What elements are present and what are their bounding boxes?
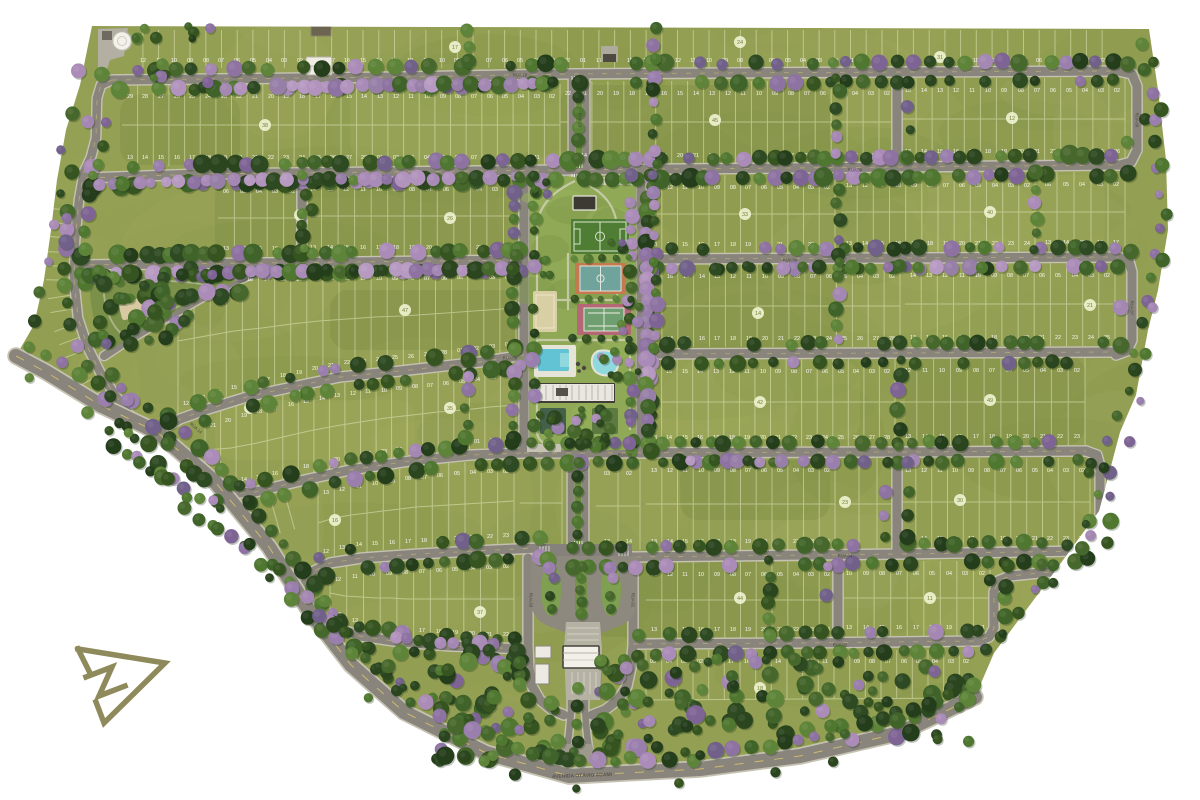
svg-text:15: 15 xyxy=(682,242,688,248)
svg-text:27: 27 xyxy=(869,435,875,441)
svg-text:03: 03 xyxy=(281,58,287,64)
svg-text:19: 19 xyxy=(946,625,952,631)
svg-text:17: 17 xyxy=(452,45,458,51)
svg-text:14: 14 xyxy=(755,311,761,317)
svg-text:19: 19 xyxy=(296,370,302,376)
svg-text:18: 18 xyxy=(629,91,635,97)
svg-text:07: 07 xyxy=(745,468,751,474)
svg-text:03: 03 xyxy=(948,659,954,665)
svg-text:08: 08 xyxy=(791,369,797,375)
svg-text:06: 06 xyxy=(436,568,442,574)
svg-text:20: 20 xyxy=(312,366,318,372)
svg-text:02: 02 xyxy=(884,91,890,97)
svg-text:06: 06 xyxy=(487,94,493,100)
svg-text:12: 12 xyxy=(393,94,399,100)
svg-text:15: 15 xyxy=(677,91,683,97)
svg-text:14: 14 xyxy=(921,88,927,94)
svg-text:06: 06 xyxy=(901,659,907,665)
svg-text:03: 03 xyxy=(1063,468,1069,474)
svg-text:01: 01 xyxy=(474,439,480,445)
svg-text:14: 14 xyxy=(361,94,367,100)
svg-text:16: 16 xyxy=(288,402,294,408)
svg-text:08: 08 xyxy=(412,384,418,390)
svg-text:14: 14 xyxy=(775,659,781,665)
svg-text:23: 23 xyxy=(1074,434,1080,440)
svg-text:02: 02 xyxy=(884,369,890,375)
svg-text:04: 04 xyxy=(1040,368,1046,374)
svg-text:04: 04 xyxy=(470,470,476,476)
svg-text:13: 13 xyxy=(846,625,852,631)
svg-text:16: 16 xyxy=(661,91,667,97)
svg-text:02: 02 xyxy=(549,94,555,100)
svg-text:01: 01 xyxy=(580,58,586,64)
svg-text:17: 17 xyxy=(714,336,720,342)
svg-text:02: 02 xyxy=(979,571,985,577)
svg-text:11: 11 xyxy=(922,368,928,374)
svg-text:23: 23 xyxy=(1008,241,1014,247)
svg-text:03: 03 xyxy=(487,469,493,475)
svg-text:42: 42 xyxy=(757,400,763,406)
svg-text:14: 14 xyxy=(142,155,148,161)
svg-text:13: 13 xyxy=(926,273,932,279)
svg-text:17: 17 xyxy=(714,627,720,633)
svg-text:21: 21 xyxy=(1087,303,1093,309)
svg-text:14: 14 xyxy=(356,542,362,548)
svg-text:04: 04 xyxy=(852,91,858,97)
svg-text:11: 11 xyxy=(682,572,688,578)
svg-text:10: 10 xyxy=(939,368,945,374)
svg-text:22: 22 xyxy=(268,155,274,161)
svg-text:03: 03 xyxy=(604,471,610,477)
svg-text:15: 15 xyxy=(372,541,378,547)
svg-text:07: 07 xyxy=(419,569,425,575)
svg-text:45: 45 xyxy=(712,118,718,124)
svg-text:05: 05 xyxy=(777,572,783,578)
svg-text:11: 11 xyxy=(352,574,358,580)
svg-text:19: 19 xyxy=(745,539,751,545)
svg-text:03: 03 xyxy=(534,94,540,100)
svg-text:04: 04 xyxy=(518,94,524,100)
svg-text:07: 07 xyxy=(745,572,751,578)
svg-text:03: 03 xyxy=(868,91,874,97)
svg-text:02: 02 xyxy=(1074,368,1080,374)
svg-text:21: 21 xyxy=(778,336,784,342)
svg-text:03: 03 xyxy=(492,187,498,193)
svg-text:12: 12 xyxy=(1009,116,1015,122)
svg-text:40: 40 xyxy=(987,210,993,216)
svg-text:04: 04 xyxy=(800,58,806,64)
svg-text:35: 35 xyxy=(447,406,453,412)
svg-text:02: 02 xyxy=(1114,88,1120,94)
svg-text:08: 08 xyxy=(869,659,875,665)
svg-text:24: 24 xyxy=(737,40,743,46)
svg-text:07: 07 xyxy=(218,58,224,64)
svg-text:11: 11 xyxy=(969,88,975,94)
svg-text:10: 10 xyxy=(952,468,958,474)
svg-text:26: 26 xyxy=(857,336,863,342)
svg-text:16: 16 xyxy=(896,625,902,631)
svg-text:08: 08 xyxy=(788,91,794,97)
svg-text:15: 15 xyxy=(682,369,688,375)
svg-text:16: 16 xyxy=(332,518,338,524)
svg-text:13: 13 xyxy=(127,155,133,161)
svg-text:14: 14 xyxy=(699,274,705,280)
svg-text:24: 24 xyxy=(1088,335,1094,341)
svg-text:06: 06 xyxy=(1050,88,1056,94)
svg-text:17: 17 xyxy=(913,625,919,631)
svg-text:23: 23 xyxy=(1072,335,1078,341)
svg-text:11: 11 xyxy=(408,94,414,100)
svg-text:08: 08 xyxy=(203,58,209,64)
svg-text:13: 13 xyxy=(651,627,657,633)
svg-text:09: 09 xyxy=(854,659,860,665)
svg-text:11: 11 xyxy=(959,273,965,279)
svg-text:04: 04 xyxy=(1047,468,1053,474)
svg-text:17: 17 xyxy=(405,539,411,545)
svg-text:49: 49 xyxy=(987,398,993,404)
svg-text:09: 09 xyxy=(775,369,781,375)
svg-text:08: 08 xyxy=(405,476,411,482)
svg-text:14: 14 xyxy=(910,273,916,279)
svg-text:05: 05 xyxy=(452,567,458,573)
svg-text:17: 17 xyxy=(973,434,979,440)
svg-text:22: 22 xyxy=(565,91,571,97)
svg-text:19: 19 xyxy=(241,413,247,419)
svg-text:04: 04 xyxy=(946,571,952,577)
svg-text:24: 24 xyxy=(1024,241,1030,247)
svg-text:12: 12 xyxy=(667,468,673,474)
svg-text:17: 17 xyxy=(419,628,425,634)
svg-text:06: 06 xyxy=(761,185,767,191)
svg-text:08: 08 xyxy=(730,185,736,191)
svg-text:07: 07 xyxy=(943,183,949,189)
svg-text:11: 11 xyxy=(746,274,752,280)
svg-text:14: 14 xyxy=(693,91,699,97)
svg-text:09: 09 xyxy=(714,572,720,578)
svg-text:08: 08 xyxy=(984,468,990,474)
svg-text:04: 04 xyxy=(853,369,859,375)
svg-text:20: 20 xyxy=(268,94,274,100)
svg-text:30: 30 xyxy=(957,498,963,504)
svg-text:02: 02 xyxy=(824,572,830,578)
svg-text:10: 10 xyxy=(846,571,852,577)
svg-text:05: 05 xyxy=(785,58,791,64)
svg-text:04: 04 xyxy=(992,183,998,189)
svg-text:07: 07 xyxy=(486,58,492,64)
svg-text:37: 37 xyxy=(477,610,483,616)
svg-text:12: 12 xyxy=(350,391,356,397)
svg-text:23: 23 xyxy=(842,500,848,506)
svg-text:12: 12 xyxy=(953,88,959,94)
svg-text:09: 09 xyxy=(396,386,402,392)
svg-text:07: 07 xyxy=(471,94,477,100)
svg-text:06: 06 xyxy=(443,381,449,387)
svg-text:09: 09 xyxy=(1001,88,1007,94)
svg-text:12: 12 xyxy=(730,274,736,280)
svg-text:17: 17 xyxy=(714,242,720,248)
svg-text:23: 23 xyxy=(503,533,509,539)
svg-text:12: 12 xyxy=(675,58,681,64)
svg-text:16: 16 xyxy=(699,336,705,342)
svg-text:10: 10 xyxy=(756,91,762,97)
svg-text:16: 16 xyxy=(272,471,278,477)
svg-text:18: 18 xyxy=(280,373,286,379)
svg-text:03: 03 xyxy=(1057,368,1063,374)
svg-text:12: 12 xyxy=(183,401,189,407)
svg-text:02: 02 xyxy=(626,471,632,477)
svg-text:09: 09 xyxy=(440,94,446,100)
svg-text:26: 26 xyxy=(447,216,453,222)
svg-text:12: 12 xyxy=(921,468,927,474)
svg-text:18: 18 xyxy=(730,336,736,342)
svg-text:22: 22 xyxy=(1057,434,1063,440)
svg-text:07: 07 xyxy=(989,368,995,374)
svg-text:02: 02 xyxy=(1104,273,1110,279)
svg-text:13: 13 xyxy=(713,369,719,375)
svg-text:07: 07 xyxy=(1034,88,1040,94)
svg-text:03: 03 xyxy=(808,468,814,474)
svg-text:15: 15 xyxy=(158,155,164,161)
svg-text:10: 10 xyxy=(760,369,766,375)
svg-text:06: 06 xyxy=(820,91,826,97)
svg-text:10: 10 xyxy=(698,572,704,578)
svg-text:11: 11 xyxy=(927,596,933,602)
svg-text:13: 13 xyxy=(937,88,943,94)
svg-text:03: 03 xyxy=(869,369,875,375)
svg-text:20: 20 xyxy=(225,418,231,424)
svg-text:05: 05 xyxy=(517,58,523,64)
svg-text:06: 06 xyxy=(1039,273,1045,279)
svg-text:19: 19 xyxy=(745,627,751,633)
svg-text:04: 04 xyxy=(1082,88,1088,94)
svg-text:22: 22 xyxy=(487,534,493,540)
svg-text:13: 13 xyxy=(339,545,345,551)
svg-text:22: 22 xyxy=(344,360,350,366)
svg-text:02: 02 xyxy=(963,659,969,665)
svg-text:33: 33 xyxy=(742,212,748,218)
svg-text:19: 19 xyxy=(745,242,751,248)
svg-text:22: 22 xyxy=(1047,536,1053,542)
svg-text:47: 47 xyxy=(402,308,408,314)
svg-text:04: 04 xyxy=(1079,182,1085,188)
svg-text:31: 31 xyxy=(937,55,943,61)
svg-text:38: 38 xyxy=(262,123,268,129)
svg-text:28: 28 xyxy=(142,94,148,100)
svg-text:18: 18 xyxy=(421,538,427,544)
svg-text:19: 19 xyxy=(613,91,619,97)
svg-text:08: 08 xyxy=(737,58,743,64)
svg-text:08: 08 xyxy=(409,187,415,193)
svg-text:15: 15 xyxy=(231,385,237,391)
svg-text:13: 13 xyxy=(651,468,657,474)
svg-text:23: 23 xyxy=(806,435,812,441)
svg-text:07: 07 xyxy=(804,91,810,97)
svg-text:06: 06 xyxy=(223,189,229,195)
svg-text:18: 18 xyxy=(985,149,991,155)
svg-text:05: 05 xyxy=(454,471,460,477)
svg-text:44: 44 xyxy=(737,596,743,602)
svg-text:16: 16 xyxy=(360,245,366,251)
svg-text:18: 18 xyxy=(303,464,309,470)
svg-text:12: 12 xyxy=(725,91,731,97)
svg-text:12: 12 xyxy=(323,549,329,555)
svg-text:07: 07 xyxy=(427,383,433,389)
svg-text:08: 08 xyxy=(1007,273,1013,279)
svg-text:09: 09 xyxy=(863,571,869,577)
svg-text:04: 04 xyxy=(793,468,799,474)
svg-text:05: 05 xyxy=(1066,88,1072,94)
svg-text:20: 20 xyxy=(597,91,603,97)
svg-text:10: 10 xyxy=(439,58,445,64)
svg-text:05: 05 xyxy=(1055,273,1061,279)
svg-text:05: 05 xyxy=(1063,182,1069,188)
svg-text:07: 07 xyxy=(810,274,816,280)
svg-text:13: 13 xyxy=(323,490,329,496)
svg-text:16: 16 xyxy=(174,155,180,161)
svg-text:06: 06 xyxy=(1036,58,1042,64)
svg-text:18: 18 xyxy=(730,627,736,633)
svg-text:04: 04 xyxy=(793,572,799,578)
svg-text:25: 25 xyxy=(838,435,844,441)
svg-text:06: 06 xyxy=(1016,468,1022,474)
svg-text:12: 12 xyxy=(140,58,146,64)
svg-text:09: 09 xyxy=(968,468,974,474)
svg-text:06: 06 xyxy=(959,183,965,189)
svg-text:06: 06 xyxy=(826,274,832,280)
svg-text:05: 05 xyxy=(929,571,935,577)
svg-text:13: 13 xyxy=(709,91,715,97)
svg-text:07: 07 xyxy=(806,369,812,375)
svg-text:20: 20 xyxy=(762,336,768,342)
svg-text:18: 18 xyxy=(730,242,736,248)
svg-text:16: 16 xyxy=(389,540,395,546)
svg-text:22: 22 xyxy=(1055,335,1061,341)
svg-text:05: 05 xyxy=(1032,468,1038,474)
svg-text:02: 02 xyxy=(1024,183,1030,189)
svg-text:20: 20 xyxy=(1023,434,1029,440)
svg-text:08: 08 xyxy=(879,571,885,577)
svg-text:08: 08 xyxy=(973,368,979,374)
svg-text:03: 03 xyxy=(962,571,968,577)
svg-text:26: 26 xyxy=(408,354,414,360)
svg-text:20: 20 xyxy=(677,153,683,159)
svg-text:07: 07 xyxy=(471,155,477,161)
svg-text:03: 03 xyxy=(808,572,814,578)
